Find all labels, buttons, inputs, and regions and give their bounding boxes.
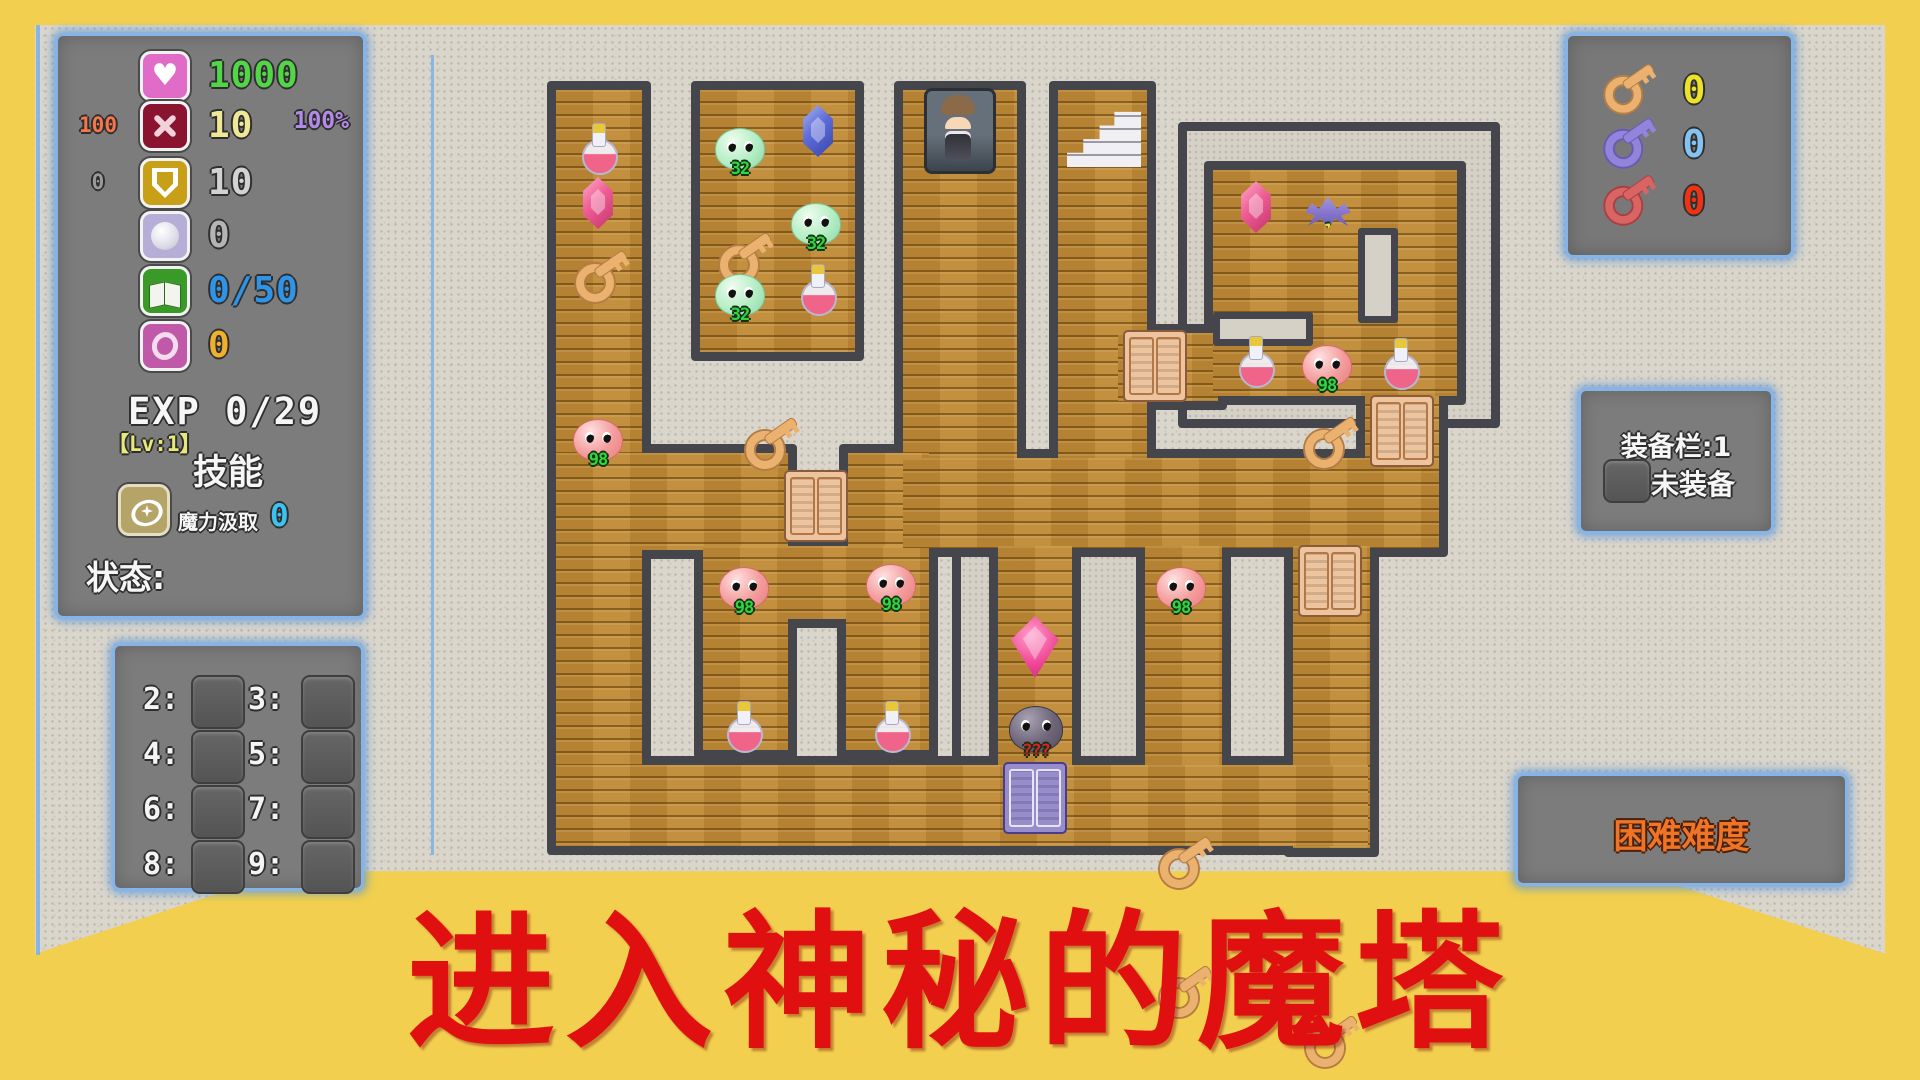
equipment-empty-label: 未装备 bbox=[1651, 463, 1735, 503]
blue-key-row: 0 bbox=[1568, 116, 1791, 170]
blue-key-icon bbox=[1601, 117, 1654, 170]
slime-value-label: 98 bbox=[589, 450, 607, 470]
floor-label-4: 4: bbox=[143, 737, 179, 772]
difficulty-label: 困难难度 bbox=[1518, 809, 1845, 858]
wall-block bbox=[1358, 228, 1398, 323]
red-key-row: 0 bbox=[1568, 173, 1791, 227]
heart-icon: ♥ bbox=[140, 51, 190, 101]
shield-icon bbox=[140, 158, 190, 208]
slime-sprite[interactable]: 98 bbox=[1156, 567, 1206, 609]
skill-name: 魔力汲取 bbox=[178, 506, 258, 535]
stat-value: 10 bbox=[208, 105, 253, 146]
slime-value-label: 98 bbox=[882, 595, 900, 615]
equipment-panel: 装备栏:1 未装备 bbox=[1578, 388, 1774, 534]
skills-title: 技能 bbox=[193, 444, 263, 495]
stat-value: 0/50 bbox=[208, 270, 299, 311]
stat-value: 0 bbox=[208, 325, 231, 366]
floor-button-6[interactable] bbox=[191, 785, 245, 839]
slime-sprite[interactable]: 98 bbox=[719, 567, 769, 609]
coin-icon bbox=[140, 321, 190, 371]
attack-icon bbox=[140, 101, 190, 151]
stat-row-shield: 010 bbox=[58, 158, 363, 208]
floor-button-4[interactable] bbox=[191, 730, 245, 784]
floor-label-6: 6: bbox=[143, 792, 179, 827]
boss-value-label: ??? bbox=[1022, 741, 1050, 761]
potion-sprite[interactable] bbox=[871, 701, 911, 753]
floor-button-5[interactable] bbox=[301, 730, 355, 784]
floor-button-7[interactable] bbox=[301, 785, 355, 839]
slime-sprite[interactable]: 32 bbox=[715, 128, 765, 170]
slime-value-label: 98 bbox=[1172, 598, 1190, 618]
yellow-key-row: 0 bbox=[1568, 62, 1791, 116]
floor-shortcut-panel: 2:3:4:5:6:7:8:9: bbox=[112, 643, 364, 891]
potion-sprite[interactable] bbox=[797, 264, 837, 316]
floor-label-5: 5: bbox=[248, 737, 284, 772]
potion-sprite[interactable] bbox=[1380, 338, 1420, 390]
tan-door-sprite[interactable] bbox=[784, 470, 848, 542]
slime-sprite[interactable]: 98 bbox=[866, 564, 916, 606]
floor-label-2: 2: bbox=[143, 682, 179, 717]
key-sprite[interactable] bbox=[742, 417, 798, 473]
slime-value-label: 98 bbox=[735, 598, 753, 618]
stat-value: 10 bbox=[208, 162, 253, 203]
slime-value-label: 32 bbox=[807, 234, 825, 254]
key-sprite[interactable] bbox=[1301, 416, 1357, 472]
floor-label-7: 7: bbox=[248, 792, 284, 827]
potion-sprite[interactable] bbox=[723, 701, 763, 753]
stats-panel: ♥10001001001000/500 100% EXP 0/29 【Lv:1】… bbox=[55, 33, 366, 619]
stat-row-coin: 0 bbox=[58, 321, 363, 371]
tan-door-sprite[interactable] bbox=[1298, 545, 1362, 617]
status-label: 状态: bbox=[86, 551, 165, 599]
potion-sprite[interactable] bbox=[578, 123, 618, 175]
slime-sprite[interactable]: 32 bbox=[791, 203, 841, 245]
stat-value: 0 bbox=[208, 215, 231, 256]
floor-label-3: 3: bbox=[248, 682, 284, 717]
slime-value-label: 32 bbox=[731, 305, 749, 325]
skill-icon[interactable] bbox=[118, 484, 170, 536]
skill-value: 0 bbox=[270, 498, 289, 534]
slime-value-label: 32 bbox=[731, 159, 749, 179]
key-count: 0 bbox=[1672, 122, 1716, 166]
slime-value-label: 98 bbox=[1318, 376, 1336, 396]
stat-side-value: 0 bbox=[68, 170, 128, 194]
stat-value: 1000 bbox=[208, 55, 299, 96]
stat-side-value: 100 bbox=[68, 113, 128, 137]
tan-door-sprite[interactable] bbox=[1123, 330, 1187, 402]
potion-sprite[interactable] bbox=[1235, 336, 1275, 388]
exp-label: EXP 0/29 bbox=[128, 390, 322, 433]
stat-row-heart: ♥1000 bbox=[58, 51, 363, 101]
key-count: 0 bbox=[1672, 68, 1716, 112]
stat-row-orb: 0 bbox=[58, 211, 363, 261]
floor bbox=[903, 458, 1439, 548]
floor-button-3[interactable] bbox=[301, 675, 355, 729]
equipment-slot[interactable] bbox=[1603, 459, 1651, 503]
tan-door-sprite[interactable] bbox=[1370, 395, 1434, 467]
stat-row-book: 0/50 bbox=[58, 266, 363, 316]
slime-sprite[interactable]: 98 bbox=[1302, 345, 1352, 387]
orb-icon bbox=[140, 211, 190, 261]
slime-sprite[interactable]: 32 bbox=[715, 274, 765, 316]
boss-sprite[interactable]: ??? bbox=[1009, 706, 1063, 752]
player-sprite bbox=[924, 88, 996, 174]
key-count: 0 bbox=[1672, 179, 1716, 223]
exp-value: 0/29 bbox=[225, 390, 322, 433]
key-inventory-panel: 000 bbox=[1565, 33, 1794, 258]
book-icon bbox=[140, 266, 190, 316]
floor bbox=[556, 765, 1368, 846]
slime-sprite[interactable]: 98 bbox=[573, 419, 623, 461]
key-sprite[interactable] bbox=[572, 250, 628, 306]
yellow-key-icon bbox=[1601, 63, 1654, 116]
purple-door-sprite[interactable] bbox=[1003, 762, 1067, 834]
red-key-icon bbox=[1601, 174, 1654, 227]
floor-button-2[interactable] bbox=[191, 675, 245, 729]
page-title: 进入神秘的魔塔 bbox=[0, 862, 1920, 1077]
level-badge: 【Lv:1】 bbox=[108, 428, 201, 458]
hit-rate-value: 100% bbox=[294, 108, 349, 134]
